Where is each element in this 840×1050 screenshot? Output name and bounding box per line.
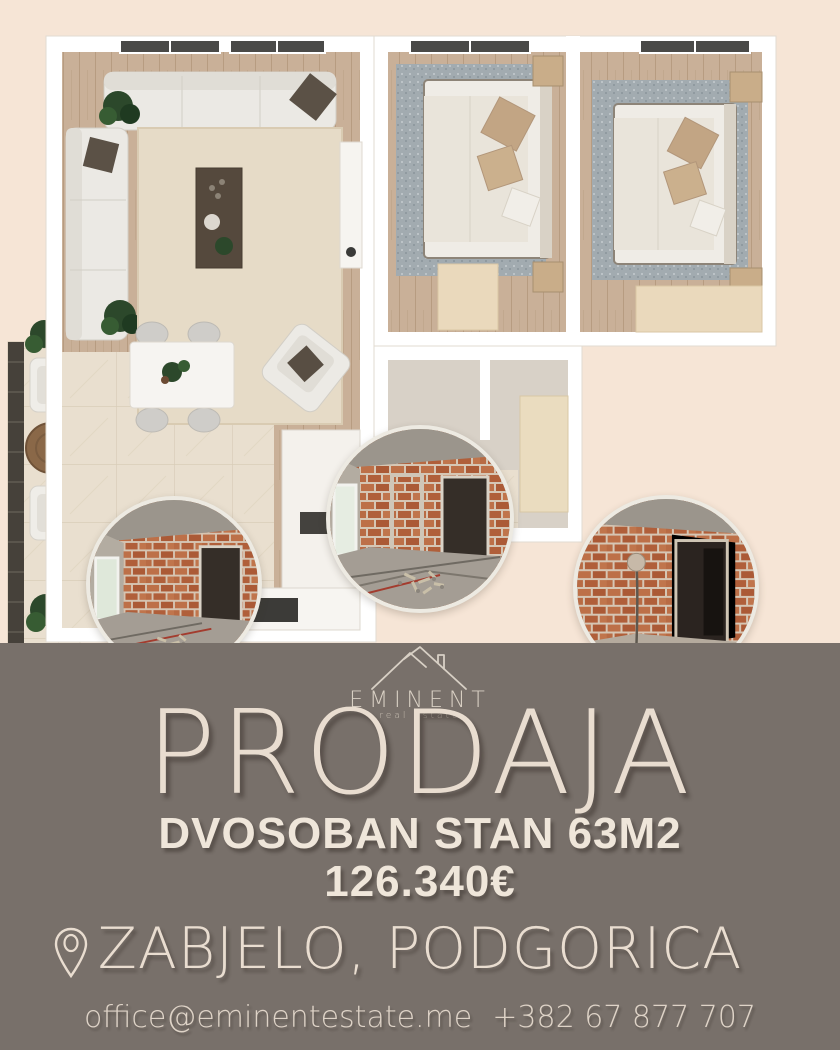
- real-estate-flyer: EMINENT real estate PRODAJA DVOSOBAN STA…: [0, 0, 840, 1050]
- contact-phone: +382 67 877 707: [492, 1000, 756, 1035]
- headline-prodaja: PRODAJA: [0, 696, 840, 812]
- info-band: EMINENT real estate PRODAJA DVOSOBAN STA…: [0, 643, 840, 1050]
- construction-photo-2: [326, 425, 514, 613]
- contact-row: office@eminentestate.me+382 67 877 707: [0, 1000, 840, 1036]
- contact-email: office@eminentestate.me: [84, 1000, 472, 1035]
- property-title: DVOSOBAN STAN 63M2: [0, 810, 840, 858]
- location-text: ZABJELO, PODGORICA: [0, 918, 840, 980]
- price: 126.340€: [0, 858, 840, 906]
